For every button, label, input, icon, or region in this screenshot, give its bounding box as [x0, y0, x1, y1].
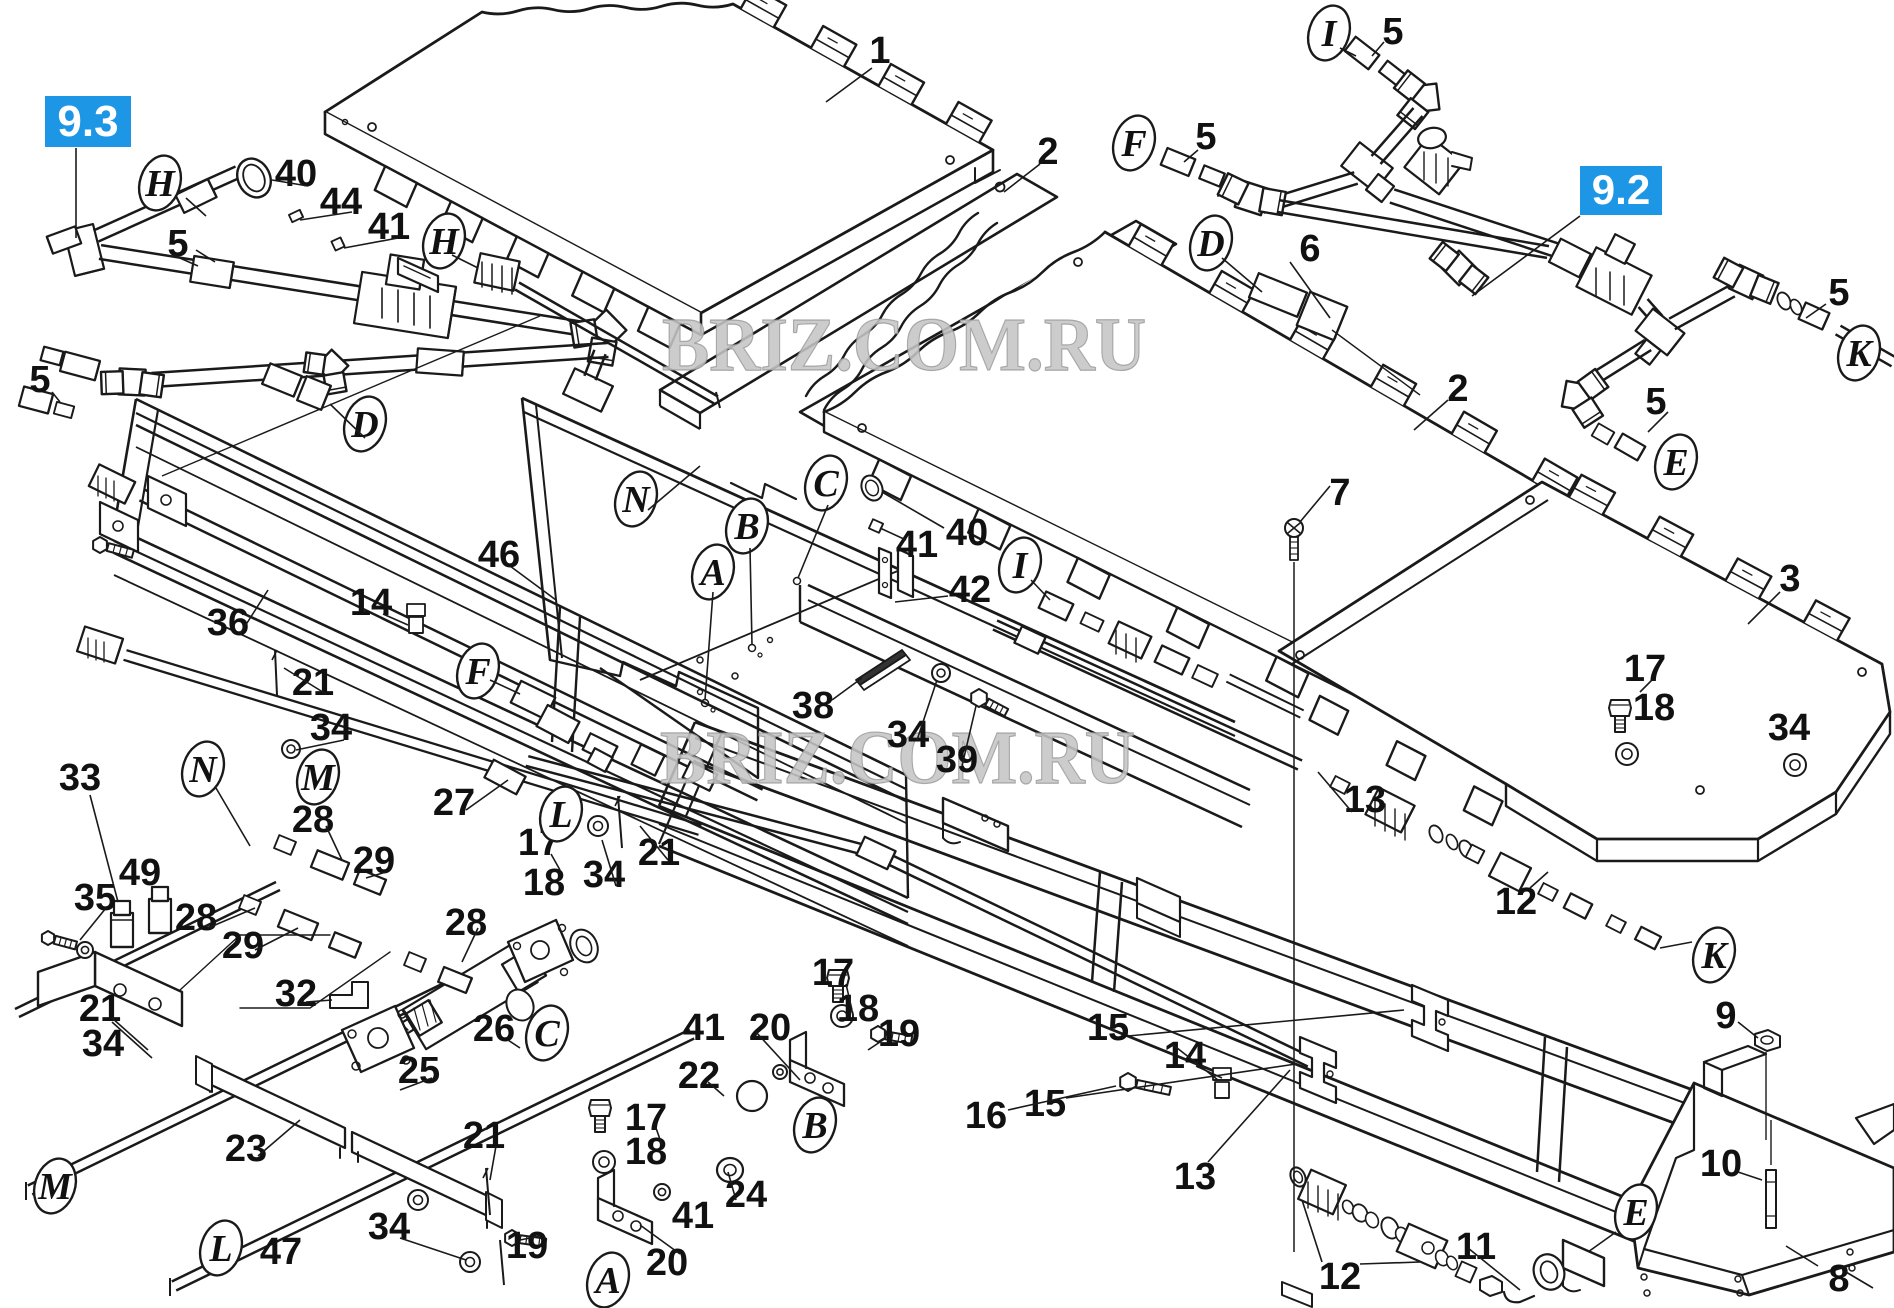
- svg-text:40: 40: [946, 512, 988, 554]
- svg-text:41: 41: [896, 524, 938, 566]
- svg-text:1: 1: [869, 30, 890, 72]
- svg-text:34: 34: [82, 1023, 124, 1065]
- svg-text:35: 35: [74, 877, 116, 919]
- svg-text:12: 12: [1319, 1256, 1361, 1298]
- svg-text:F: F: [1120, 123, 1146, 165]
- svg-text:C: C: [813, 463, 839, 505]
- svg-text:47: 47: [260, 1231, 302, 1273]
- svg-text:13: 13: [1174, 1156, 1216, 1198]
- svg-text:34: 34: [368, 1206, 410, 1248]
- svg-text:40: 40: [275, 153, 317, 195]
- svg-text:H: H: [144, 163, 176, 205]
- svg-text:L: L: [548, 794, 572, 836]
- svg-text:E: E: [1622, 1192, 1648, 1234]
- svg-text:5: 5: [1195, 116, 1216, 158]
- svg-text:D: D: [1196, 223, 1224, 265]
- svg-text:D: D: [350, 404, 378, 446]
- svg-text:M: M: [37, 1166, 73, 1208]
- svg-text:29: 29: [222, 925, 264, 967]
- svg-text:9: 9: [1715, 995, 1736, 1037]
- svg-text:14: 14: [1164, 1035, 1206, 1077]
- svg-text:15: 15: [1024, 1083, 1066, 1125]
- svg-text:21: 21: [463, 1115, 505, 1157]
- svg-text:I: I: [1321, 13, 1338, 55]
- svg-text:5: 5: [1828, 272, 1849, 314]
- svg-text:A: A: [698, 552, 725, 594]
- svg-text:20: 20: [646, 1242, 688, 1284]
- svg-text:5: 5: [167, 223, 188, 265]
- svg-text:14: 14: [350, 582, 392, 624]
- svg-text:38: 38: [792, 685, 834, 727]
- svg-text:N: N: [621, 479, 651, 521]
- svg-text:27: 27: [433, 782, 475, 824]
- svg-text:B: B: [733, 506, 759, 548]
- svg-text:21: 21: [638, 832, 680, 874]
- svg-text:I: I: [1012, 545, 1029, 587]
- svg-text:K: K: [1700, 935, 1729, 977]
- svg-text:49: 49: [119, 852, 161, 894]
- svg-text:2: 2: [1447, 368, 1468, 410]
- svg-text:33: 33: [59, 757, 101, 799]
- svg-text:34: 34: [1768, 707, 1810, 749]
- svg-text:18: 18: [1633, 687, 1675, 729]
- svg-text:F: F: [464, 651, 490, 693]
- svg-text:21: 21: [292, 662, 334, 704]
- svg-text:36: 36: [207, 602, 249, 644]
- svg-text:2: 2: [1037, 131, 1058, 173]
- svg-text:19: 19: [878, 1013, 920, 1055]
- svg-text:K: K: [1845, 333, 1874, 375]
- svg-text:BRIZ.COM.RU: BRIZ.COM.RU: [662, 303, 1146, 387]
- svg-text:22: 22: [678, 1055, 720, 1097]
- svg-text:25: 25: [398, 1050, 440, 1092]
- svg-text:E: E: [1662, 442, 1688, 484]
- svg-text:17: 17: [1624, 648, 1666, 690]
- svg-text:9.3: 9.3: [57, 97, 118, 146]
- svg-text:L: L: [208, 1228, 232, 1270]
- svg-text:9.2: 9.2: [1592, 166, 1650, 213]
- svg-text:41: 41: [672, 1195, 714, 1237]
- svg-text:3: 3: [1779, 558, 1800, 600]
- svg-text:13: 13: [1344, 779, 1386, 821]
- svg-text:18: 18: [837, 988, 879, 1030]
- svg-text:15: 15: [1087, 1007, 1129, 1049]
- svg-text:28: 28: [175, 897, 217, 939]
- svg-text:18: 18: [625, 1131, 667, 1173]
- svg-text:N: N: [188, 749, 218, 791]
- svg-text:23: 23: [225, 1128, 267, 1170]
- svg-text:5: 5: [29, 359, 50, 401]
- svg-text:5: 5: [1382, 11, 1403, 53]
- svg-text:42: 42: [949, 569, 991, 611]
- svg-text:8: 8: [1828, 1258, 1849, 1300]
- svg-text:6: 6: [1299, 228, 1320, 270]
- svg-text:41: 41: [683, 1007, 725, 1049]
- svg-text:34: 34: [583, 854, 625, 896]
- svg-text:19: 19: [506, 1225, 548, 1267]
- svg-text:10: 10: [1700, 1143, 1742, 1185]
- svg-text:26: 26: [473, 1008, 515, 1050]
- svg-text:B: B: [801, 1105, 827, 1147]
- svg-text:28: 28: [445, 902, 487, 944]
- svg-text:7: 7: [1329, 472, 1350, 514]
- svg-text:39: 39: [936, 739, 978, 781]
- svg-text:16: 16: [965, 1095, 1007, 1137]
- svg-text:M: M: [300, 757, 336, 799]
- svg-text:A: A: [593, 1260, 620, 1302]
- svg-text:20: 20: [749, 1007, 791, 1049]
- svg-text:C: C: [534, 1013, 560, 1055]
- svg-text:32: 32: [275, 973, 317, 1015]
- svg-text:11: 11: [1456, 1226, 1496, 1268]
